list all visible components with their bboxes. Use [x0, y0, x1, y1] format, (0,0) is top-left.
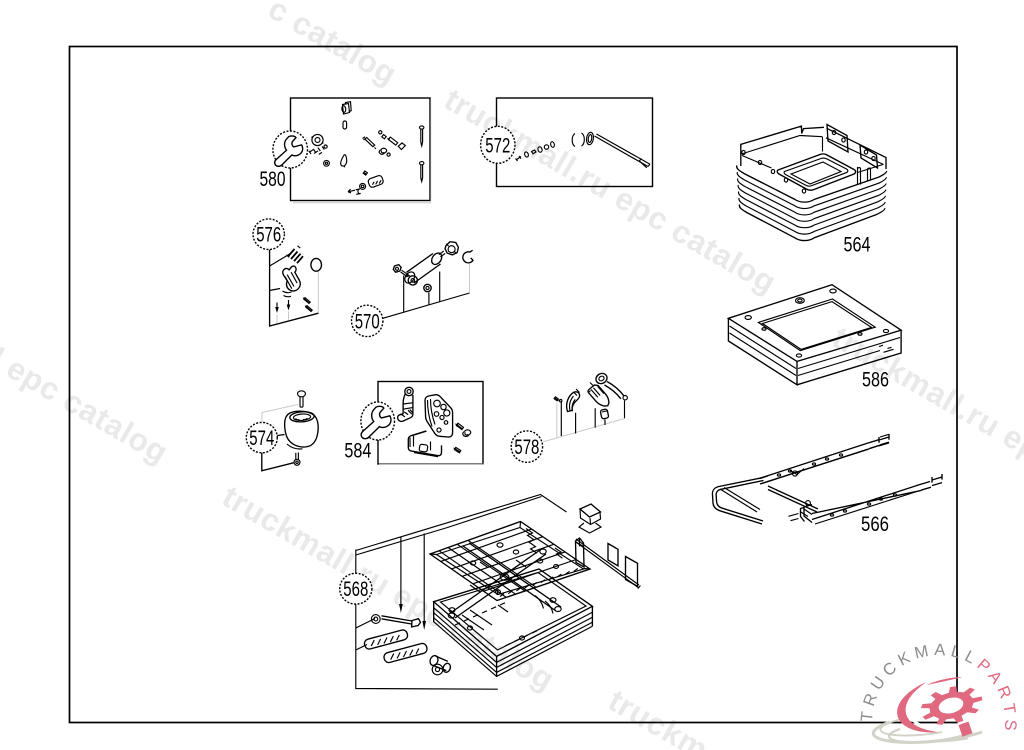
svg-text:570: 570: [355, 309, 380, 333]
svg-text:truckmall.ru epc catalog: truckmall.ru epc catalog: [217, 478, 561, 698]
svg-text:572: 572: [485, 133, 510, 157]
svg-text:564: 564: [844, 234, 871, 257]
svg-text:l epc catalog: l epc catalog: [0, 340, 175, 470]
svg-text:574: 574: [249, 426, 274, 450]
svg-text:584: 584: [344, 440, 371, 463]
svg-text:truckmall.ru epc catalog: truckmall.ru epc catalog: [439, 81, 783, 301]
svg-text:568: 568: [343, 577, 368, 601]
svg-text:truckmall.ru ep: truckmall.ru ep: [827, 319, 1024, 468]
svg-text:566: 566: [861, 513, 889, 536]
svg-text:586: 586: [862, 369, 889, 392]
svg-text:truckmall.r: truckmall.r: [603, 682, 766, 750]
svg-text:578: 578: [514, 435, 539, 459]
svg-text:580: 580: [260, 168, 286, 191]
svg-text:576: 576: [256, 223, 281, 247]
